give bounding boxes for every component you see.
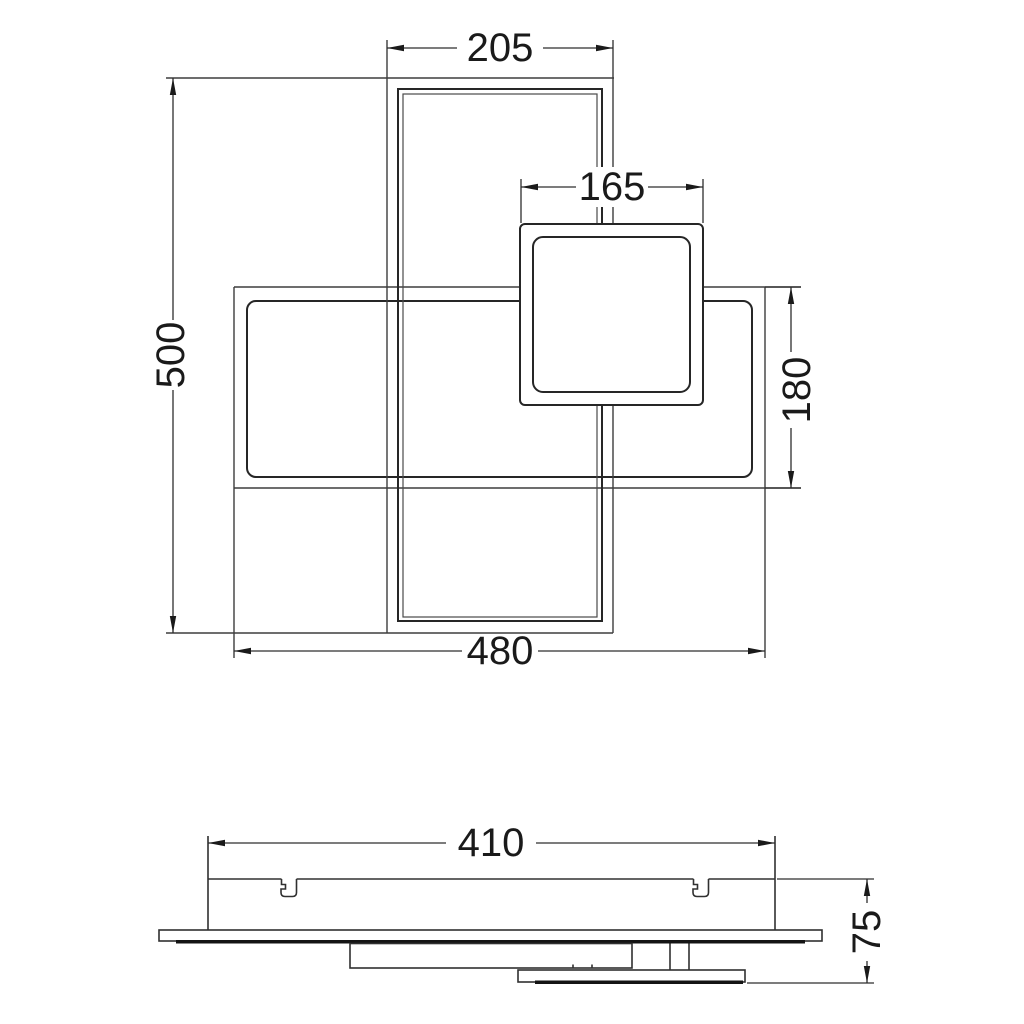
dim-410: 410	[208, 821, 775, 865]
dim-205: 205	[387, 26, 613, 70]
arrowhead-up	[788, 287, 794, 304]
side-view: 410 75	[159, 821, 889, 984]
dim-500: 500	[149, 78, 193, 633]
square-frame	[520, 224, 703, 405]
dim-label-mount-body-width: 410	[458, 821, 525, 865]
arrowhead-left	[521, 184, 538, 190]
dim-75: 75	[747, 879, 889, 983]
arrowhead-up	[170, 78, 176, 95]
bottom-profile	[518, 970, 745, 984]
arrowhead-right	[686, 184, 703, 190]
arrowhead-right	[758, 840, 775, 846]
mounting-hook-left	[281, 879, 297, 897]
top-view: 205 165 500 180	[149, 26, 819, 673]
dim-165: 165	[521, 165, 703, 223]
dim-label-overall-height: 75	[845, 910, 889, 955]
middle-profile	[350, 944, 632, 969]
horizontal-frame	[234, 287, 801, 658]
bottom-shadow-bar	[535, 981, 743, 985]
technical-drawing-canvas: 205 165 500 180	[0, 0, 1024, 1024]
arrowhead-right	[596, 45, 613, 51]
arrowhead-up	[864, 879, 870, 896]
dim-label-square-frame-width: 165	[579, 165, 646, 209]
dim-label-horizontal-frame-width: 480	[467, 629, 534, 673]
stem	[670, 944, 689, 971]
mounting-hook-right	[693, 879, 709, 897]
arrowhead-left	[387, 45, 404, 51]
dim-label-vertical-frame-height: 500	[149, 322, 193, 389]
dim-480: 480	[234, 629, 765, 673]
drawing-page: 205 165 500 180	[0, 0, 1024, 1024]
arrowhead-down	[788, 471, 794, 488]
arrowhead-left	[234, 648, 251, 654]
dim-label-vertical-frame-width: 205	[467, 26, 534, 70]
dim-180: 180	[765, 287, 819, 488]
arrowhead-down	[864, 966, 870, 983]
dim-label-horizontal-frame-height: 180	[775, 357, 819, 424]
arrowhead-down	[170, 616, 176, 633]
ceiling-plate	[159, 930, 822, 944]
arrowhead-right	[748, 648, 765, 654]
arrowhead-left	[208, 840, 225, 846]
